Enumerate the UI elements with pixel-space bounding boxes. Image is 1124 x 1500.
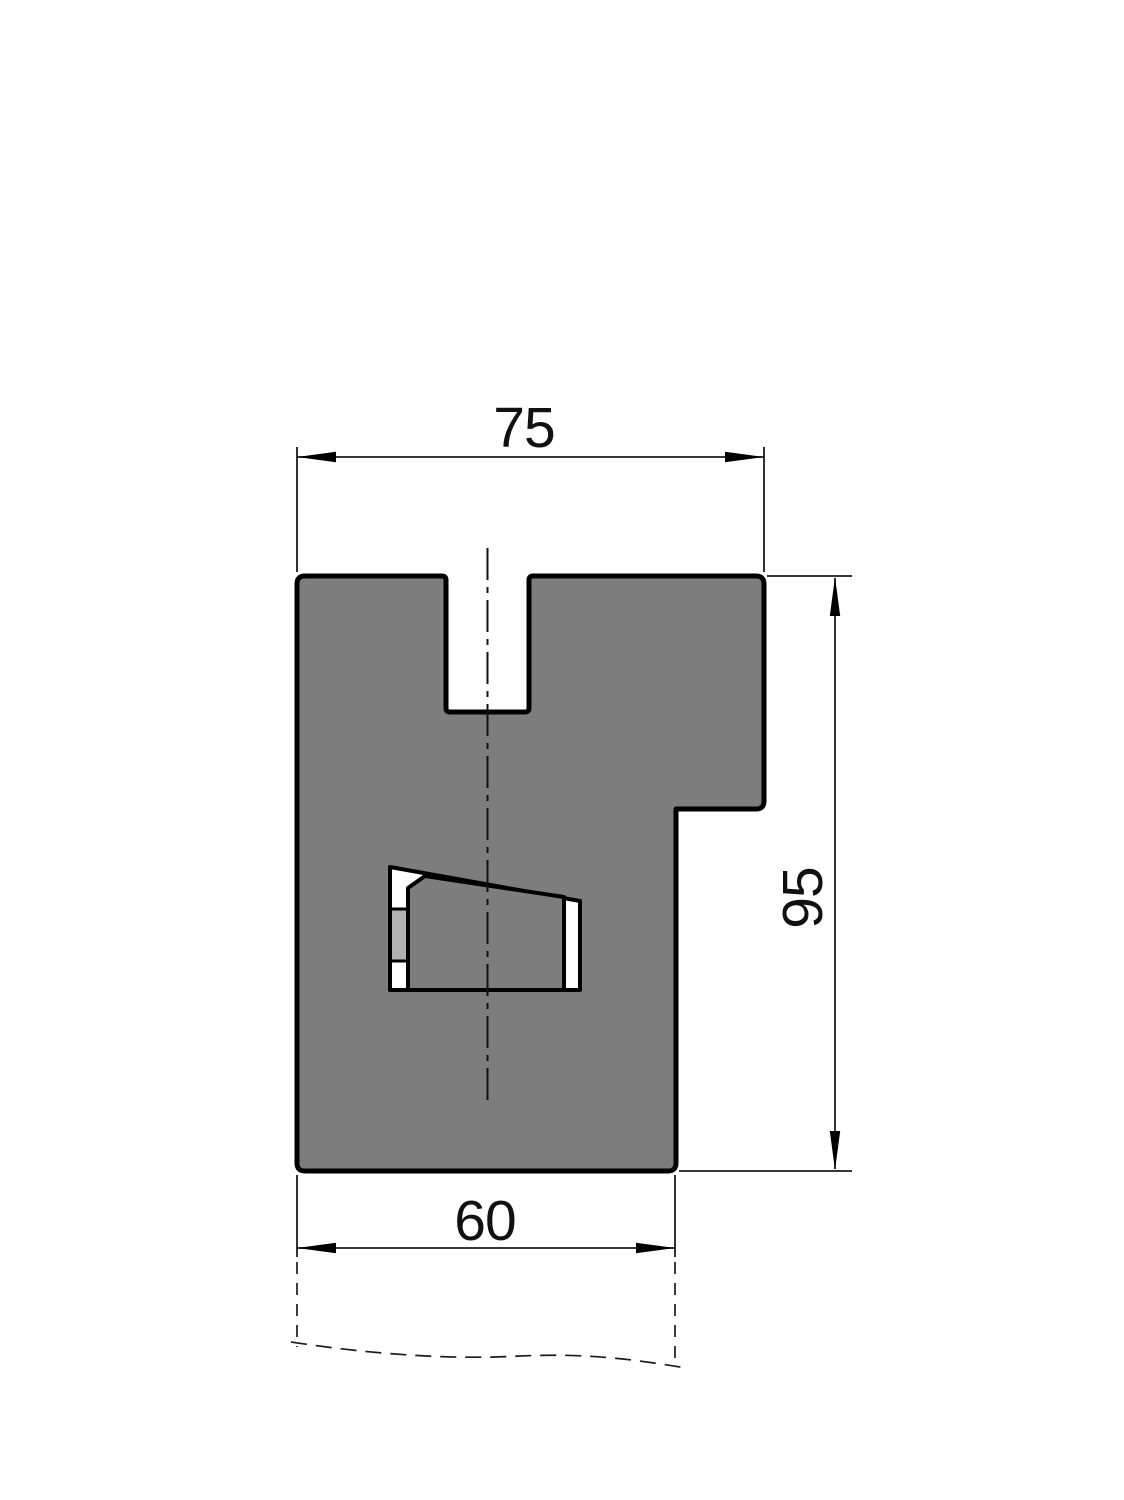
arrowhead-right xyxy=(725,452,764,462)
dim-text-right-height: 95 xyxy=(771,867,835,928)
phantom-continuation xyxy=(291,1262,686,1368)
arrowhead-bottom xyxy=(830,1131,840,1170)
dimension-top-width xyxy=(297,447,764,572)
dim-text-top-width: 75 xyxy=(493,396,554,460)
dim-text-bottom-width: 60 xyxy=(454,1189,515,1253)
arrowhead-top xyxy=(830,577,840,616)
insert-pad xyxy=(391,909,409,961)
arrowhead-right xyxy=(636,1243,675,1253)
break-line xyxy=(291,1342,686,1368)
clamped-block xyxy=(408,876,564,990)
technical-drawing-canvas: 75 95 60 xyxy=(0,0,1124,1500)
drawing-sheet: 75 95 60 xyxy=(0,0,1124,1500)
part-body-profile xyxy=(297,576,764,1171)
arrowhead-left xyxy=(297,1243,336,1253)
arrowhead-left xyxy=(297,452,336,462)
